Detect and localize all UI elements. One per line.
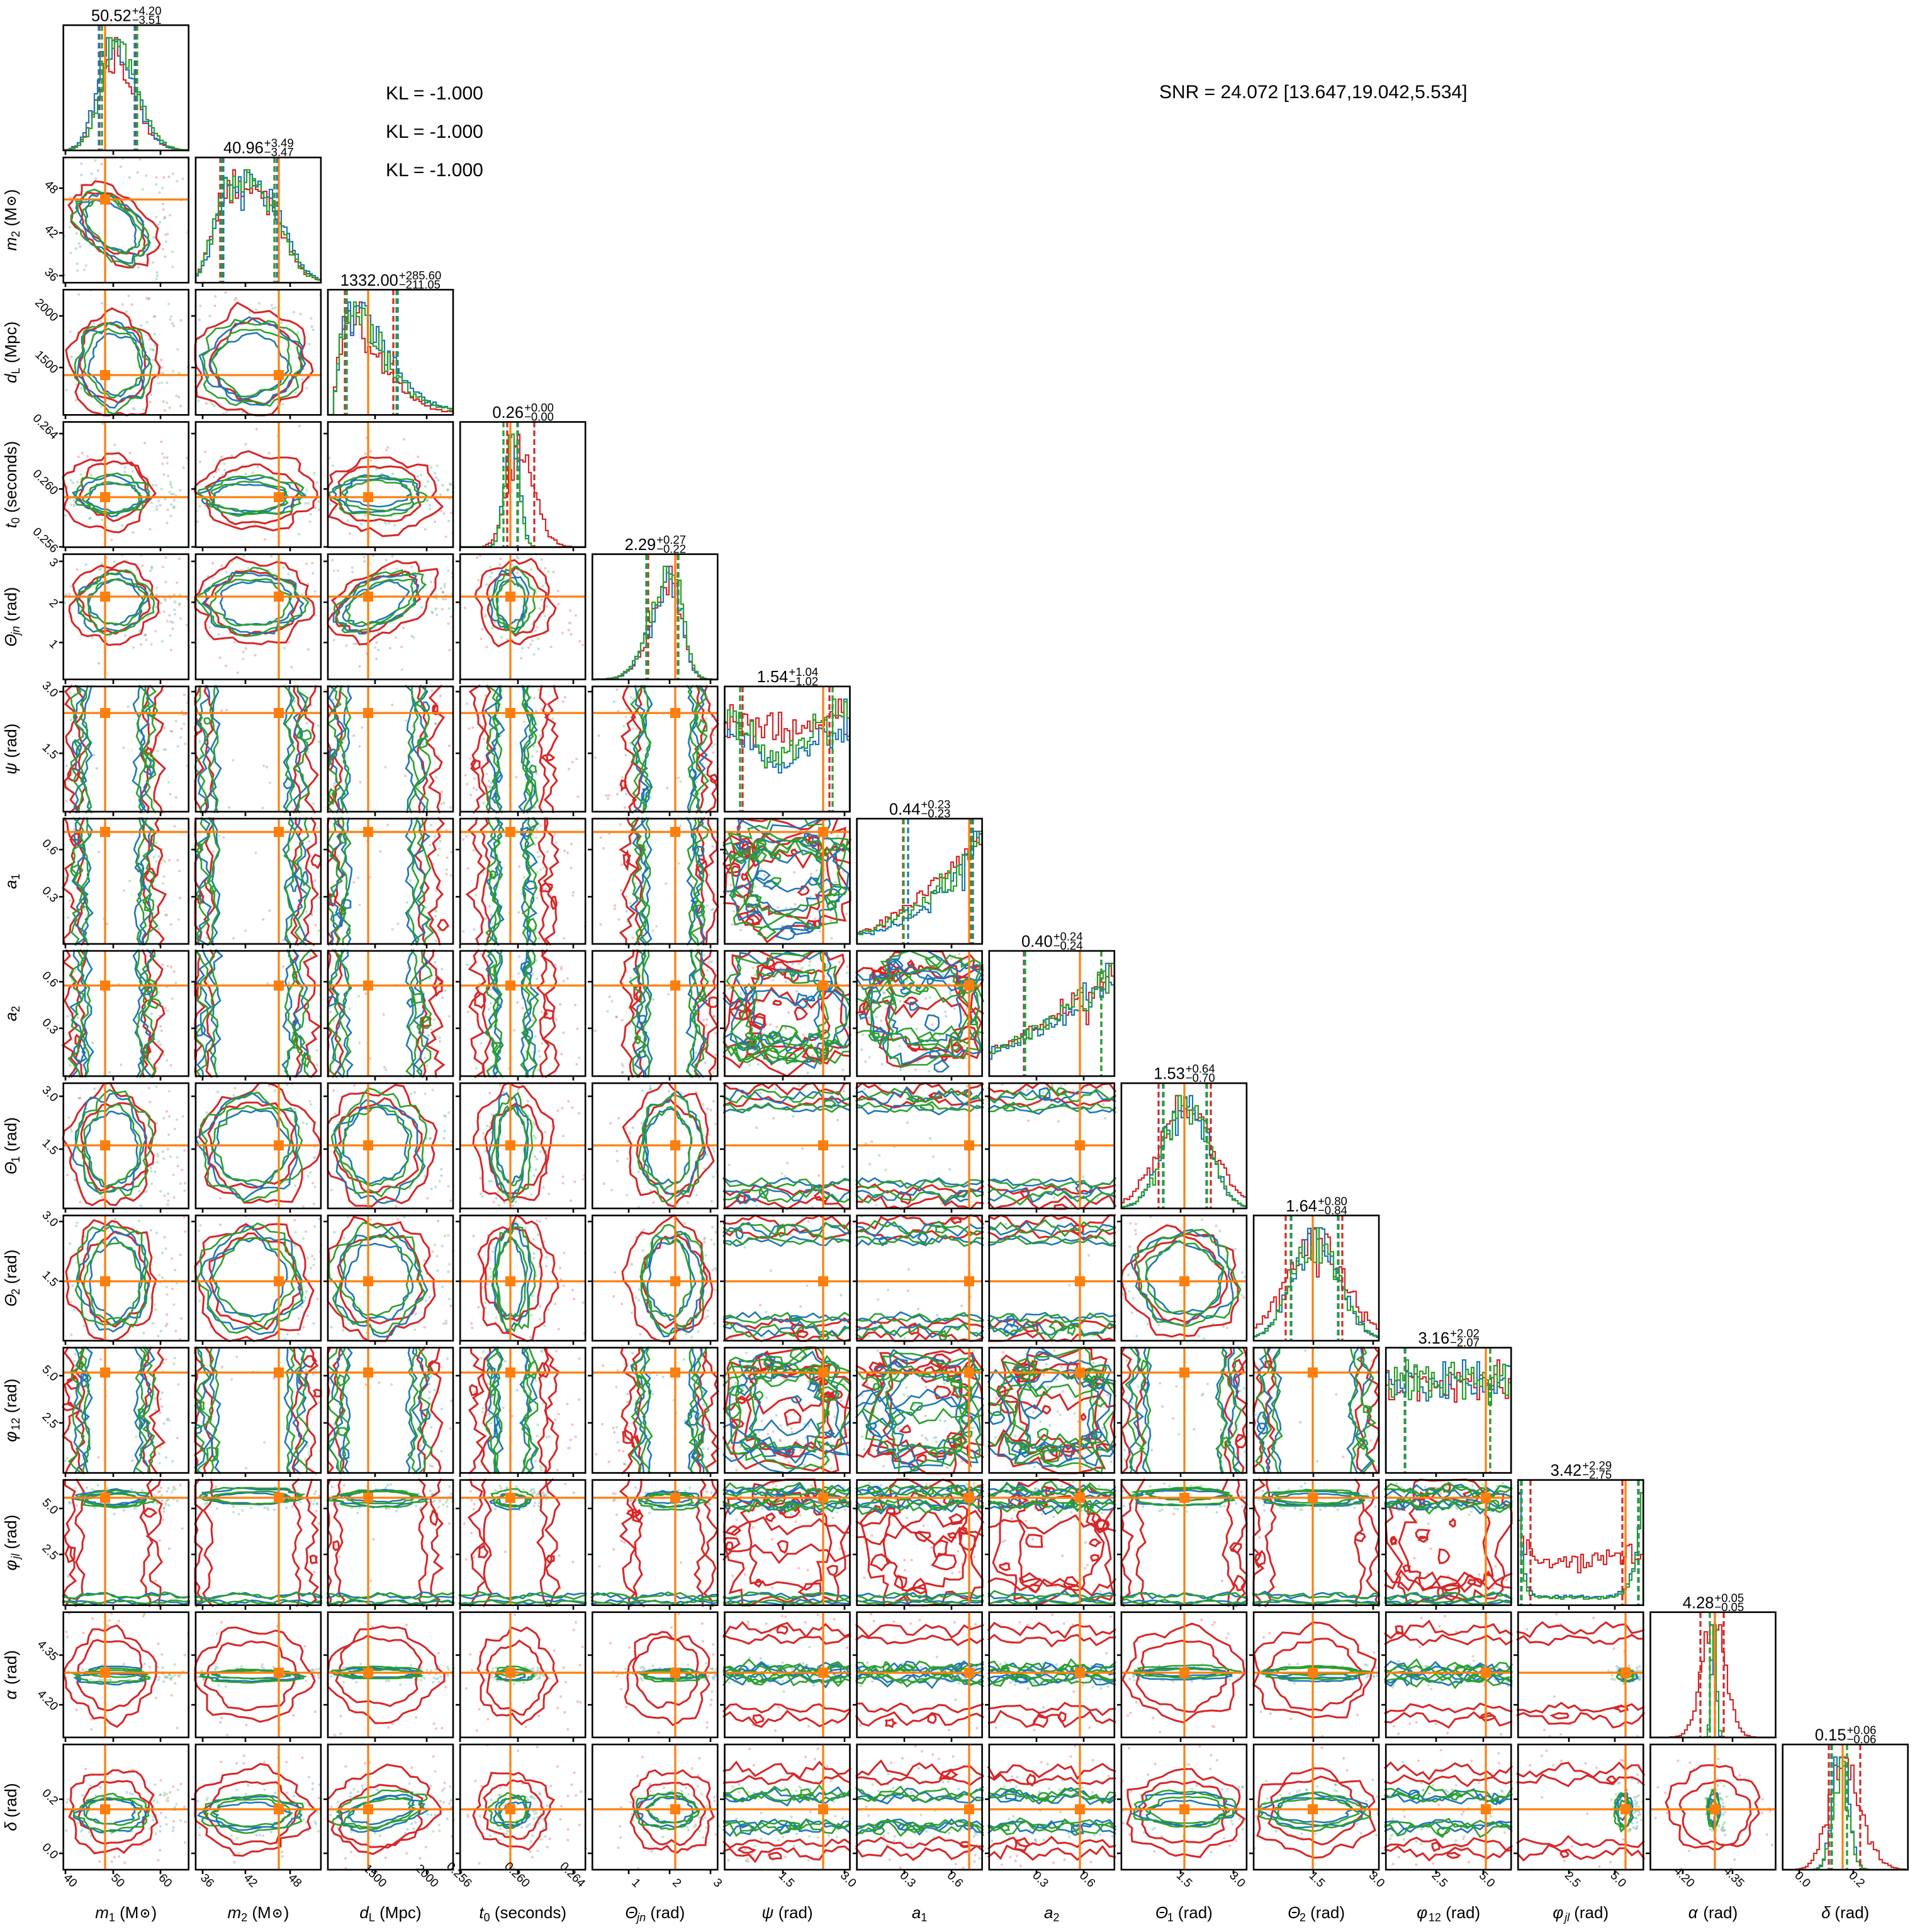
svg-text:φ: φ [1, 1431, 20, 1442]
svg-text:(rad): (rad) [1, 587, 20, 626]
svg-text:Θ: Θ [625, 1903, 637, 1922]
svg-text:2: 2 [9, 1006, 22, 1012]
svg-text:−0.00: −0.00 [524, 410, 554, 424]
svg-text:0.26: 0.26 [492, 404, 524, 422]
svg-text:α: α [1, 1690, 20, 1700]
svg-text:(rad): (rad) [1, 1249, 20, 1288]
svg-text:(M: (M [115, 1903, 139, 1922]
svg-text:φ: φ [1553, 1903, 1563, 1922]
svg-text:1: 1 [921, 1911, 927, 1924]
svg-text:(Mpc): (Mpc) [1, 322, 20, 368]
svg-text:−2.07: −2.07 [1450, 1336, 1480, 1349]
svg-text:1.53: 1.53 [1154, 1065, 1185, 1083]
svg-text:a: a [912, 1903, 921, 1922]
svg-text:−211.05: −211.05 [399, 278, 441, 291]
svg-text:φ: φ [1, 1560, 20, 1571]
svg-text:(rad): (rad) [1174, 1903, 1213, 1922]
svg-text:−0.24: −0.24 [1053, 939, 1083, 952]
svg-text:): ) [284, 1903, 289, 1922]
svg-text:1332.00: 1332.00 [340, 272, 398, 289]
svg-text:1: 1 [109, 1911, 115, 1924]
svg-text:(rad): (rad) [1441, 1903, 1480, 1922]
svg-text:−0.70: −0.70 [1186, 1071, 1215, 1084]
svg-text:1: 1 [9, 873, 22, 880]
svg-text:−0.06: −0.06 [1847, 1733, 1877, 1746]
svg-text:(Mpc): (Mpc) [375, 1903, 422, 1922]
svg-text:Θ: Θ [1, 1162, 20, 1174]
svg-text:Θ: Θ [1288, 1903, 1300, 1922]
svg-text:a: a [1, 880, 20, 889]
svg-text:1: 1 [1167, 1911, 1174, 1924]
svg-text:−0.23: −0.23 [921, 807, 951, 820]
svg-text:): ) [1, 189, 20, 195]
svg-text:3.16: 3.16 [1418, 1330, 1450, 1347]
svg-text:a: a [1, 1012, 20, 1021]
svg-text:−0.22: −0.22 [656, 542, 686, 556]
svg-text:SNR = 24.072 [13.647,19.042,5.: SNR = 24.072 [13.647,19.042,5.534] [1159, 82, 1468, 103]
svg-text:L: L [9, 368, 22, 374]
svg-text:jn: jn [9, 626, 22, 637]
svg-text:(rad): (rad) [1, 1650, 20, 1689]
svg-text:a: a [1044, 1903, 1053, 1922]
svg-text:12: 12 [9, 1418, 22, 1430]
svg-text:−3.47: −3.47 [264, 145, 294, 159]
svg-text:1: 1 [9, 1156, 22, 1162]
svg-text:2: 2 [9, 1289, 22, 1295]
svg-text:L: L [369, 1911, 375, 1924]
svg-text:(seconds): (seconds) [1, 441, 20, 517]
svg-text:0.40: 0.40 [1021, 933, 1053, 951]
svg-text:(M: (M [247, 1903, 271, 1922]
svg-text:(seconds): (seconds) [490, 1903, 566, 1922]
svg-text:−3.51: −3.51 [132, 13, 162, 26]
svg-text:0: 0 [484, 1911, 490, 1924]
svg-text:δ: δ [1, 1822, 20, 1831]
svg-text:ψ: ψ [1, 763, 20, 775]
svg-text:1.54: 1.54 [757, 668, 789, 686]
svg-text:(rad): (rad) [1306, 1903, 1345, 1922]
svg-text:Θ: Θ [1, 634, 20, 646]
svg-text:(rad): (rad) [1, 1783, 20, 1822]
svg-text:(rad): (rad) [1830, 1903, 1869, 1922]
svg-text:KL = -1.000: KL = -1.000 [386, 160, 483, 181]
svg-text:(rad): (rad) [1, 1117, 20, 1156]
svg-text:KL = -1.000: KL = -1.000 [386, 121, 483, 142]
svg-text:(rad): (rad) [646, 1903, 685, 1922]
svg-text:1.64: 1.64 [1286, 1198, 1317, 1215]
svg-text:m: m [95, 1903, 109, 1922]
svg-text:): ) [152, 1903, 157, 1922]
svg-text:(rad): (rad) [1, 1515, 20, 1554]
svg-text:Θ: Θ [1155, 1903, 1168, 1922]
svg-text:m: m [228, 1903, 242, 1922]
svg-text:ψ: ψ [761, 1903, 773, 1922]
svg-text:δ: δ [1821, 1903, 1831, 1922]
svg-text:(rad): (rad) [1699, 1903, 1738, 1922]
svg-text:2.29: 2.29 [625, 536, 656, 554]
svg-text:0: 0 [9, 517, 22, 524]
svg-text:(rad): (rad) [1, 1379, 20, 1418]
svg-text:α: α [1688, 1903, 1699, 1922]
svg-text:φ: φ [1417, 1903, 1427, 1922]
svg-text:2: 2 [9, 231, 22, 237]
svg-text:4.28: 4.28 [1683, 1594, 1714, 1612]
svg-text:2: 2 [1300, 1911, 1306, 1924]
svg-text:12: 12 [1429, 1911, 1441, 1924]
svg-text:40.96: 40.96 [223, 140, 264, 157]
svg-text:KL = -1.000: KL = -1.000 [386, 83, 483, 104]
svg-text:50.52: 50.52 [91, 8, 132, 25]
svg-text:2: 2 [241, 1911, 247, 1924]
svg-text:−1.02: −1.02 [789, 675, 818, 688]
svg-text:(rad): (rad) [1, 724, 20, 763]
svg-text:(M: (M [1, 207, 20, 231]
svg-text:m: m [1, 237, 20, 251]
svg-text:(rad): (rad) [1570, 1903, 1609, 1922]
svg-text:2: 2 [1053, 1911, 1059, 1924]
svg-text:jn: jn [635, 1911, 646, 1924]
svg-text:−0.84: −0.84 [1318, 1203, 1347, 1216]
svg-text:−0.05: −0.05 [1714, 1600, 1744, 1614]
svg-text:0.15: 0.15 [1815, 1727, 1846, 1744]
svg-text:Θ: Θ [1, 1294, 20, 1306]
svg-text:−2.75: −2.75 [1582, 1468, 1612, 1481]
svg-text:(rad): (rad) [774, 1903, 813, 1922]
svg-text:0.44: 0.44 [889, 800, 921, 818]
svg-text:3.42: 3.42 [1551, 1462, 1582, 1480]
